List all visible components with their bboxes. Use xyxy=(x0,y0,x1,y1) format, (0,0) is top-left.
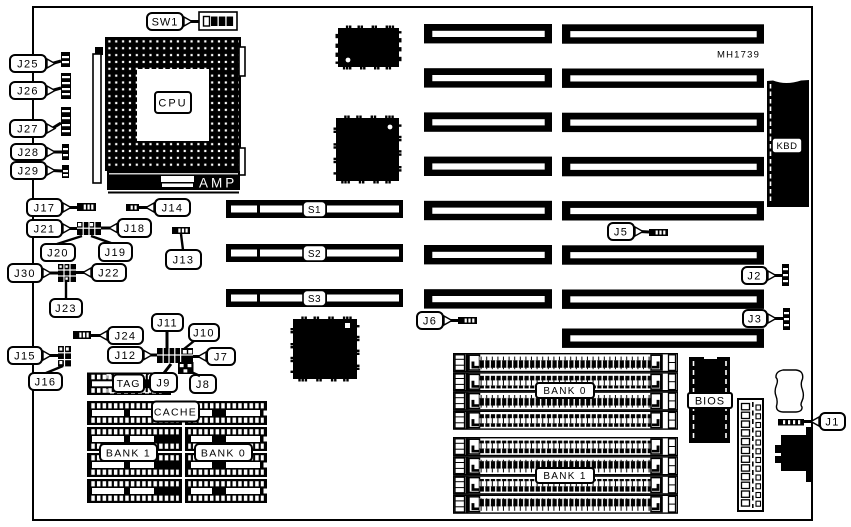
svg-text:J5: J5 xyxy=(614,226,628,238)
svg-text:J10: J10 xyxy=(193,327,215,339)
svg-text:J13: J13 xyxy=(173,254,195,266)
svg-text:J2: J2 xyxy=(747,270,761,282)
svg-text:J9: J9 xyxy=(156,377,170,389)
svg-text:KBD: KBD xyxy=(776,141,797,152)
svg-text:J6: J6 xyxy=(423,315,437,327)
svg-text:J29: J29 xyxy=(18,165,40,177)
svg-text:J14: J14 xyxy=(162,202,184,214)
svg-text:J17: J17 xyxy=(34,202,56,214)
svg-text:J7: J7 xyxy=(214,351,228,363)
svg-text:AMP: AMP xyxy=(199,176,237,191)
svg-text:J18: J18 xyxy=(124,223,146,235)
svg-text:S2: S2 xyxy=(308,249,321,260)
svg-text:J22: J22 xyxy=(98,267,120,279)
svg-text:J27: J27 xyxy=(17,123,39,135)
svg-text:J23: J23 xyxy=(55,303,77,315)
svg-text:J24: J24 xyxy=(115,330,137,342)
svg-text:BANK 0: BANK 0 xyxy=(543,386,586,397)
svg-text:J16: J16 xyxy=(35,376,57,388)
svg-text:J12: J12 xyxy=(115,350,137,362)
svg-text:S1: S1 xyxy=(308,205,321,216)
svg-text:J1: J1 xyxy=(825,416,839,428)
svg-text:J11: J11 xyxy=(157,317,178,329)
svg-text:J21: J21 xyxy=(34,223,56,235)
svg-text:J20: J20 xyxy=(47,247,69,259)
svg-text:J30: J30 xyxy=(14,268,36,280)
svg-text:J28: J28 xyxy=(18,147,40,159)
svg-text:CACHE: CACHE xyxy=(154,406,197,418)
svg-text:SW1: SW1 xyxy=(152,16,179,28)
svg-text:MH1739: MH1739 xyxy=(717,50,760,61)
svg-text:J25: J25 xyxy=(17,58,39,70)
svg-text:J19: J19 xyxy=(105,247,127,259)
svg-text:BIOS: BIOS xyxy=(695,395,725,407)
svg-text:S3: S3 xyxy=(308,294,321,305)
svg-text:J15: J15 xyxy=(14,350,36,362)
svg-text:BANK 0: BANK 0 xyxy=(201,447,246,459)
svg-text:BANK 1: BANK 1 xyxy=(543,471,586,482)
svg-text:BANK 1: BANK 1 xyxy=(106,447,151,459)
svg-text:TAG: TAG xyxy=(117,378,141,390)
svg-text:J8: J8 xyxy=(196,379,210,391)
svg-text:CPU: CPU xyxy=(158,97,187,109)
svg-text:J26: J26 xyxy=(17,85,39,97)
svg-text:J3: J3 xyxy=(748,313,762,325)
